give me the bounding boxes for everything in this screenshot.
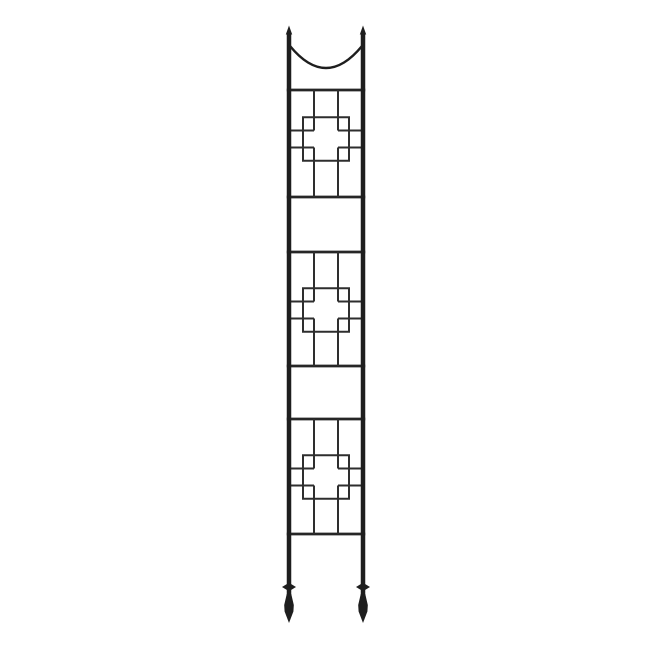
right-post xyxy=(361,33,366,596)
right-post-spear-foot xyxy=(358,594,368,623)
motif-square xyxy=(303,117,349,161)
right-post-collar xyxy=(356,583,370,592)
left-post-collar xyxy=(282,583,296,592)
motif-square xyxy=(303,455,349,499)
left-post-spear-foot xyxy=(284,594,294,623)
trellis-svg xyxy=(0,0,650,650)
top-arc xyxy=(290,46,362,68)
motif-square xyxy=(303,288,349,332)
product-image-canvas xyxy=(0,0,650,650)
product-photo-trellis xyxy=(0,0,650,650)
left-post xyxy=(287,33,292,596)
